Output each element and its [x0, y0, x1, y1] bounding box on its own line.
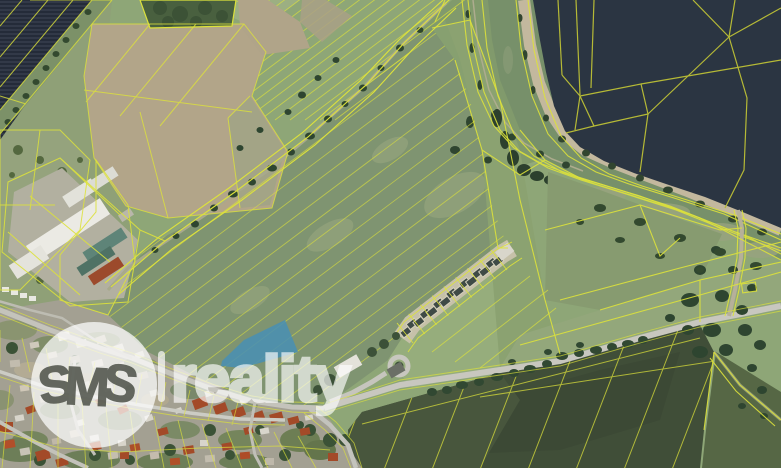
svg-text:reality: reality	[171, 342, 350, 415]
